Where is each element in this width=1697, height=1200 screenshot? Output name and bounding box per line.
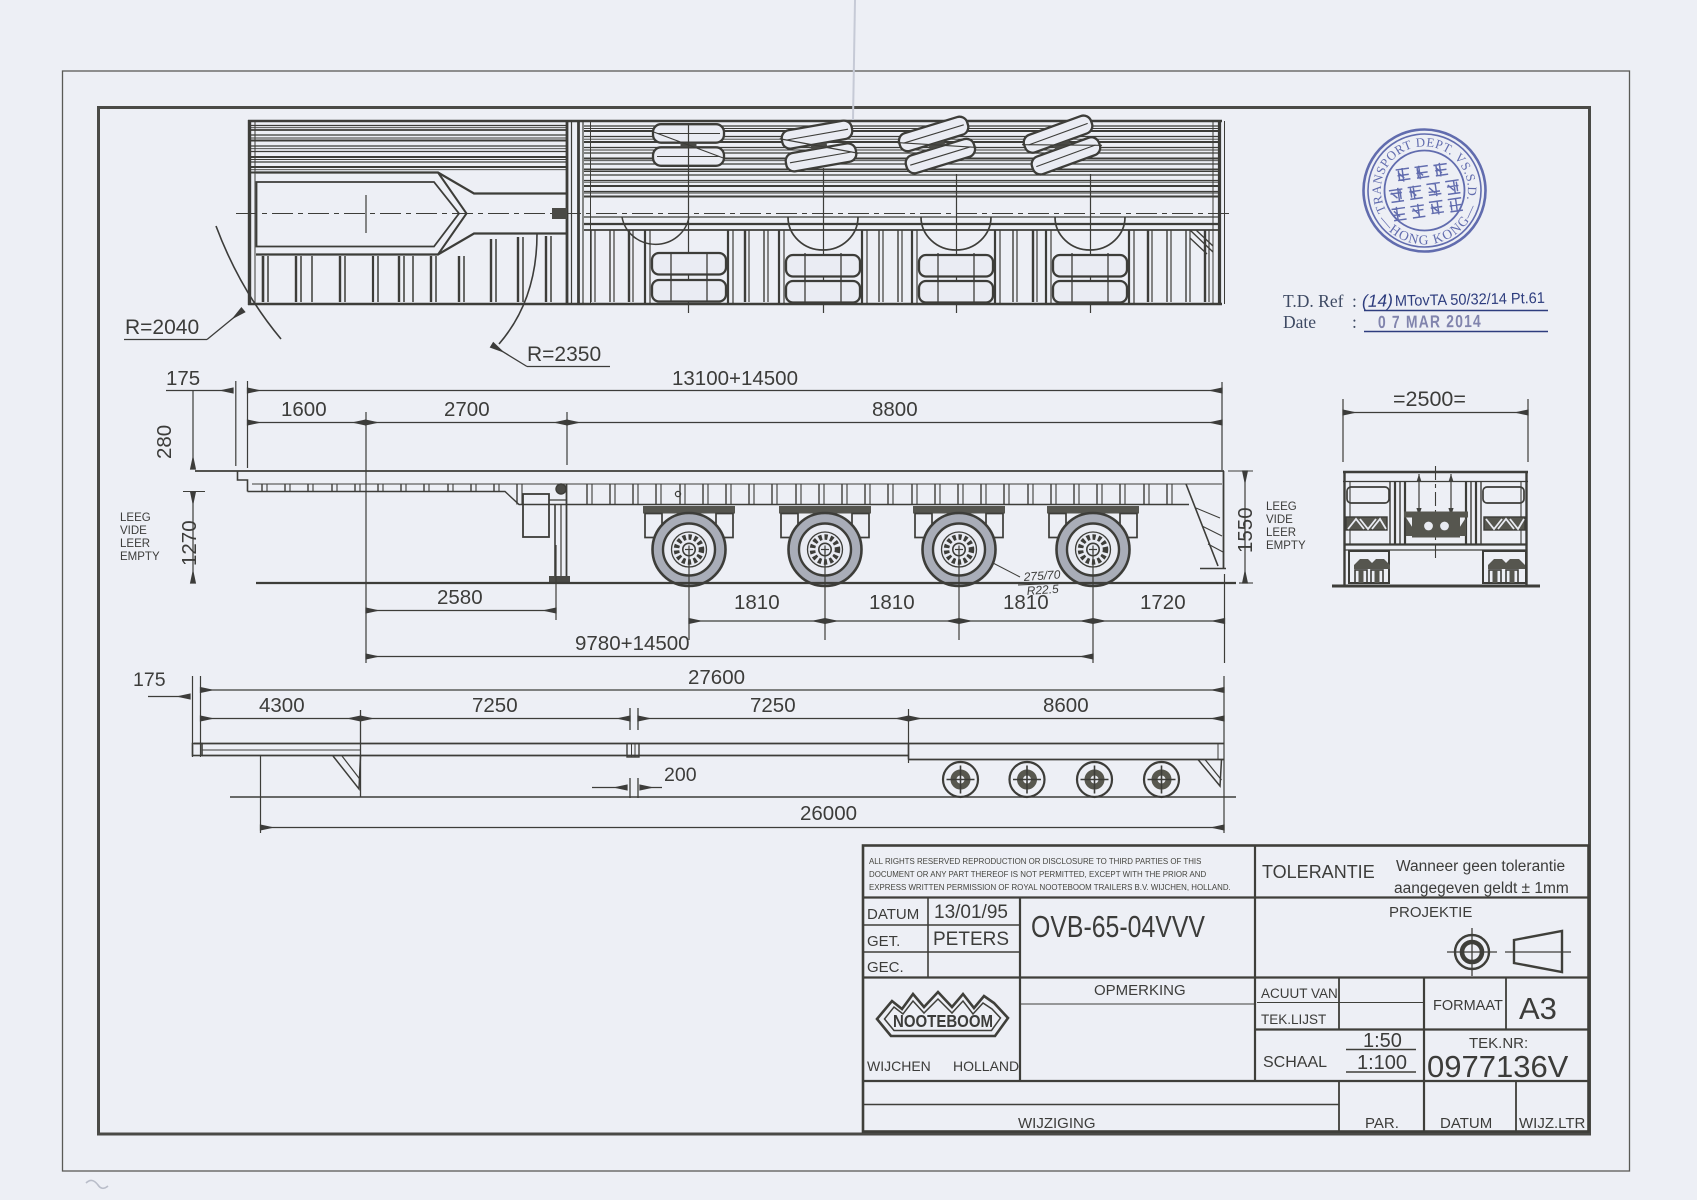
svg-text:EMPTY: EMPTY bbox=[120, 551, 160, 563]
svg-text:WIJZIGING: WIJZIGING bbox=[1018, 1115, 1096, 1132]
svg-text:NOOTEBOOM: NOOTEBOOM bbox=[893, 1011, 993, 1031]
svg-text:1:50: 1:50 bbox=[1363, 1030, 1402, 1052]
svg-text:8600: 8600 bbox=[1043, 694, 1089, 717]
svg-text:175: 175 bbox=[166, 367, 200, 390]
svg-text:PAR.: PAR. bbox=[1365, 1115, 1399, 1132]
svg-text:1720: 1720 bbox=[1140, 591, 1186, 614]
svg-text:13/01/95: 13/01/95 bbox=[934, 902, 1008, 923]
svg-text:LEER: LEER bbox=[1266, 527, 1296, 539]
svg-text:LEER: LEER bbox=[120, 538, 150, 550]
svg-text:R=2040: R=2040 bbox=[125, 316, 199, 339]
svg-text:2580: 2580 bbox=[437, 586, 483, 609]
svg-text:GEC.: GEC. bbox=[867, 959, 904, 976]
svg-text:0977136V: 0977136V bbox=[1427, 1049, 1569, 1084]
svg-text:OPMERKING: OPMERKING bbox=[1094, 982, 1186, 999]
svg-text:LEEG: LEEG bbox=[1266, 501, 1297, 513]
svg-text:1810: 1810 bbox=[869, 591, 915, 614]
svg-text:280: 280 bbox=[153, 425, 176, 459]
svg-text::: : bbox=[1352, 312, 1357, 332]
svg-text:(14): (14) bbox=[1362, 290, 1394, 311]
svg-text:Date: Date bbox=[1283, 312, 1316, 332]
svg-text:VIDE: VIDE bbox=[1266, 514, 1293, 526]
svg-text:T.D. Ref: T.D. Ref bbox=[1283, 291, 1344, 311]
svg-text:9780+14500: 9780+14500 bbox=[575, 632, 690, 655]
svg-text:WIJZ.LTR: WIJZ.LTR bbox=[1519, 1115, 1586, 1132]
svg-text:TOLERANTIE: TOLERANTIE bbox=[1262, 862, 1375, 882]
svg-text:ALL RIGHTS RESERVED REPRODUCTI: ALL RIGHTS RESERVED REPRODUCTION OR DISC… bbox=[869, 857, 1201, 866]
svg-text:27600: 27600 bbox=[688, 666, 745, 689]
svg-text:2700: 2700 bbox=[444, 398, 490, 421]
svg-text:1810: 1810 bbox=[734, 591, 780, 614]
svg-text:GET.: GET. bbox=[867, 933, 900, 950]
svg-text:DATUM: DATUM bbox=[867, 906, 919, 923]
svg-text:WIJCHEN: WIJCHEN bbox=[867, 1058, 931, 1074]
svg-text:DATUM: DATUM bbox=[1440, 1115, 1492, 1132]
svg-text:=2500=: =2500= bbox=[1393, 387, 1466, 411]
svg-text:1:100: 1:100 bbox=[1357, 1052, 1407, 1074]
svg-text:13100+14500: 13100+14500 bbox=[672, 367, 798, 390]
svg-text:FORMAAT: FORMAAT bbox=[1433, 998, 1503, 1014]
svg-text:LEEG: LEEG bbox=[120, 512, 151, 524]
svg-text:4300: 4300 bbox=[259, 694, 305, 717]
svg-text:ACUUT VAN: ACUUT VAN bbox=[1261, 986, 1338, 1001]
svg-text:1810: 1810 bbox=[1003, 591, 1049, 614]
svg-text:VIDE: VIDE bbox=[120, 525, 147, 537]
svg-text:Wanneer geen tolerantie: Wanneer geen tolerantie bbox=[1396, 858, 1565, 875]
svg-text:DOCUMENT OR ANY PART THEREOF I: DOCUMENT OR ANY PART THEREOF IS NOT PERM… bbox=[869, 870, 1206, 879]
svg-text:SCHAAL: SCHAAL bbox=[1263, 1054, 1327, 1071]
svg-text:1270: 1270 bbox=[178, 520, 201, 566]
svg-text:175: 175 bbox=[133, 669, 166, 691]
svg-text:aangegeven geldt ± 1mm: aangegeven geldt ± 1mm bbox=[1394, 880, 1569, 897]
svg-text:HOLLAND: HOLLAND bbox=[953, 1058, 1019, 1074]
svg-text:MTovTA 50/32/14 Pt.61: MTovTA 50/32/14 Pt.61 bbox=[1395, 290, 1545, 310]
svg-text:7250: 7250 bbox=[472, 694, 518, 717]
svg-text:A3: A3 bbox=[1519, 991, 1557, 1026]
svg-text:EMPTY: EMPTY bbox=[1266, 540, 1306, 552]
svg-text:0 7 MAR 2014: 0 7 MAR 2014 bbox=[1378, 311, 1482, 332]
svg-text:7250: 7250 bbox=[750, 694, 796, 717]
svg-text:PROJEKTIE: PROJEKTIE bbox=[1389, 904, 1472, 921]
svg-text::: : bbox=[1352, 291, 1357, 311]
svg-text:R=2350: R=2350 bbox=[527, 343, 601, 366]
svg-text:PETERS: PETERS bbox=[933, 929, 1009, 950]
svg-text:26000: 26000 bbox=[800, 802, 857, 825]
svg-text:TEK.LIJST: TEK.LIJST bbox=[1261, 1012, 1326, 1027]
svg-text:EXPRESS WRITTEN PERMISSION OF: EXPRESS WRITTEN PERMISSION OF ROYAL NOOT… bbox=[869, 883, 1231, 892]
svg-text:1600: 1600 bbox=[281, 398, 327, 421]
svg-text:200: 200 bbox=[664, 764, 697, 786]
svg-text:8800: 8800 bbox=[872, 398, 918, 421]
svg-text:OVB-65-04VVV: OVB-65-04VVV bbox=[1031, 909, 1205, 944]
